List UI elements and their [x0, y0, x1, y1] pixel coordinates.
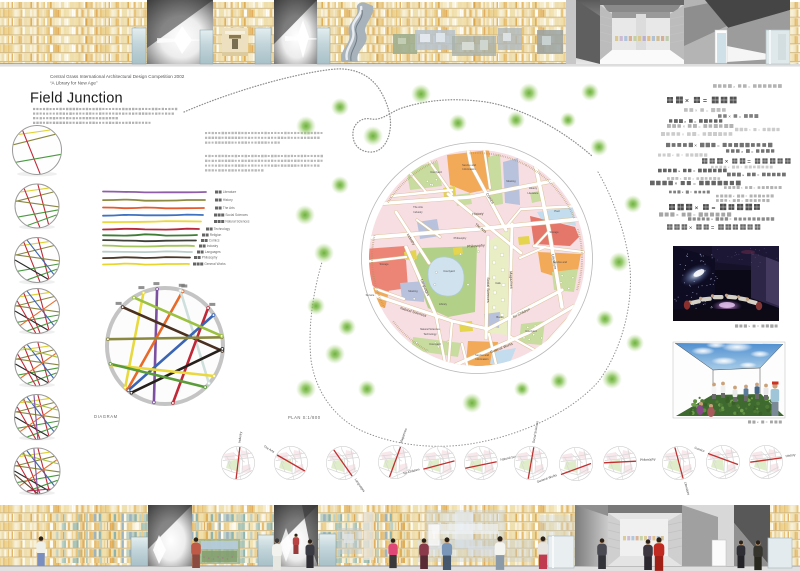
svg-text:History: History	[529, 186, 538, 190]
svg-text:×: ×	[672, 154, 674, 158]
svg-text:×: ×	[711, 218, 713, 222]
svg-text:=: =	[753, 186, 755, 190]
svg-text:×: ×	[695, 108, 698, 113]
svg-text:=: =	[703, 96, 707, 105]
svg-text:=: =	[741, 199, 743, 203]
svg-text:Service and: Service and	[553, 260, 567, 264]
svg-text:Technology: Technology	[423, 332, 437, 336]
svg-text:Courtyard: Courtyard	[429, 342, 441, 346]
svg-text:×: ×	[689, 226, 693, 232]
svg-text:=: =	[693, 182, 696, 187]
svg-text:Meeting: Meeting	[408, 289, 418, 293]
svg-text:Philosophy: Philosophy	[454, 236, 467, 240]
svg-text:Field Junction: Field Junction	[30, 91, 123, 107]
svg-text:Pool: Pool	[554, 209, 560, 213]
svg-text:=: =	[757, 325, 759, 329]
svg-text:×: ×	[741, 186, 743, 190]
svg-text:Literature: Literature	[223, 190, 237, 194]
svg-text:Service and: Service and	[475, 353, 489, 357]
svg-text:Information: Information	[463, 167, 477, 171]
svg-text:=: =	[729, 218, 731, 222]
svg-text:PLAN S:1/800: PLAN S:1/800	[288, 415, 321, 420]
svg-text:Technology: Technology	[214, 227, 231, 231]
svg-text:×: ×	[685, 96, 689, 105]
svg-text:=: =	[758, 128, 760, 132]
svg-text:DIAGRAM: DIAGRAM	[94, 414, 118, 419]
svg-text:History: History	[472, 212, 484, 217]
svg-text:Natural Sciences: Natural Sciences	[225, 220, 250, 224]
svg-text:The Arts: The Arts	[413, 205, 423, 209]
svg-text:=: =	[693, 213, 696, 218]
svg-text:=: =	[706, 108, 709, 113]
svg-text:=: =	[681, 154, 683, 158]
svg-text:Meeting: Meeting	[506, 179, 516, 183]
svg-text:×: ×	[749, 128, 751, 132]
svg-text:×: ×	[748, 325, 750, 329]
svg-text:×: ×	[682, 190, 684, 194]
svg-text:=: =	[692, 177, 694, 181]
svg-text:×: ×	[676, 213, 679, 218]
svg-text:Information: Information	[476, 357, 490, 361]
svg-text:Religion: Religion	[210, 233, 222, 237]
svg-text:=: =	[690, 190, 692, 194]
svg-text:×: ×	[695, 205, 699, 212]
svg-text:The Arts: The Arts	[223, 206, 235, 210]
svg-text:Cafe: Cafe	[495, 281, 501, 285]
svg-text:Social Sciences: Social Sciences	[486, 277, 490, 303]
svg-text:History: History	[223, 198, 233, 202]
svg-text:Central Grass International Ar: Central Grass International Architectura…	[50, 74, 185, 79]
svg-text:Comics: Comics	[209, 239, 220, 243]
svg-text:×: ×	[680, 177, 682, 181]
svg-text:Industry: Industry	[413, 210, 423, 214]
svg-text:×: ×	[757, 421, 759, 425]
svg-text:Storage: Storage	[549, 230, 559, 234]
svg-text:Philosophy: Philosophy	[640, 457, 656, 462]
svg-text:=: =	[740, 165, 742, 169]
svg-text:=: =	[766, 421, 768, 425]
svg-text:Courtyard: Courtyard	[525, 329, 537, 333]
svg-text:Service and: Service and	[462, 163, 476, 167]
svg-text:General Works: General Works	[204, 262, 226, 266]
svg-text:Service: Service	[366, 293, 375, 297]
svg-text:Languages: Languages	[205, 250, 221, 254]
svg-text:=: =	[712, 205, 716, 212]
svg-text:×: ×	[694, 143, 697, 148]
svg-text:=: =	[711, 226, 715, 232]
svg-text:×: ×	[675, 181, 678, 187]
svg-text:=: =	[745, 194, 747, 198]
svg-text:Books: Books	[496, 315, 504, 319]
svg-text:Magazines: Magazines	[509, 271, 514, 289]
svg-text:Natural Sciences: Natural Sciences	[420, 327, 440, 331]
svg-text:Courtyard: Courtyard	[443, 269, 455, 273]
svg-text:×: ×	[733, 194, 735, 198]
svg-text:×: ×	[728, 165, 730, 169]
svg-text:Literature: Literature	[528, 191, 540, 195]
svg-text:×: ×	[729, 199, 731, 203]
svg-text:=: =	[747, 159, 751, 166]
svg-text:Courtyard: Courtyard	[430, 170, 442, 174]
svg-text:Philosophy: Philosophy	[202, 256, 218, 260]
svg-text:“A Library for New Age”: “A Library for New Age”	[50, 81, 98, 86]
svg-text:Storage: Storage	[379, 262, 389, 266]
svg-text:Library: Library	[439, 302, 448, 306]
svg-text:Industry: Industry	[207, 244, 219, 248]
svg-text:=: =	[717, 143, 720, 148]
svg-text:Social Sciences: Social Sciences	[225, 213, 248, 217]
